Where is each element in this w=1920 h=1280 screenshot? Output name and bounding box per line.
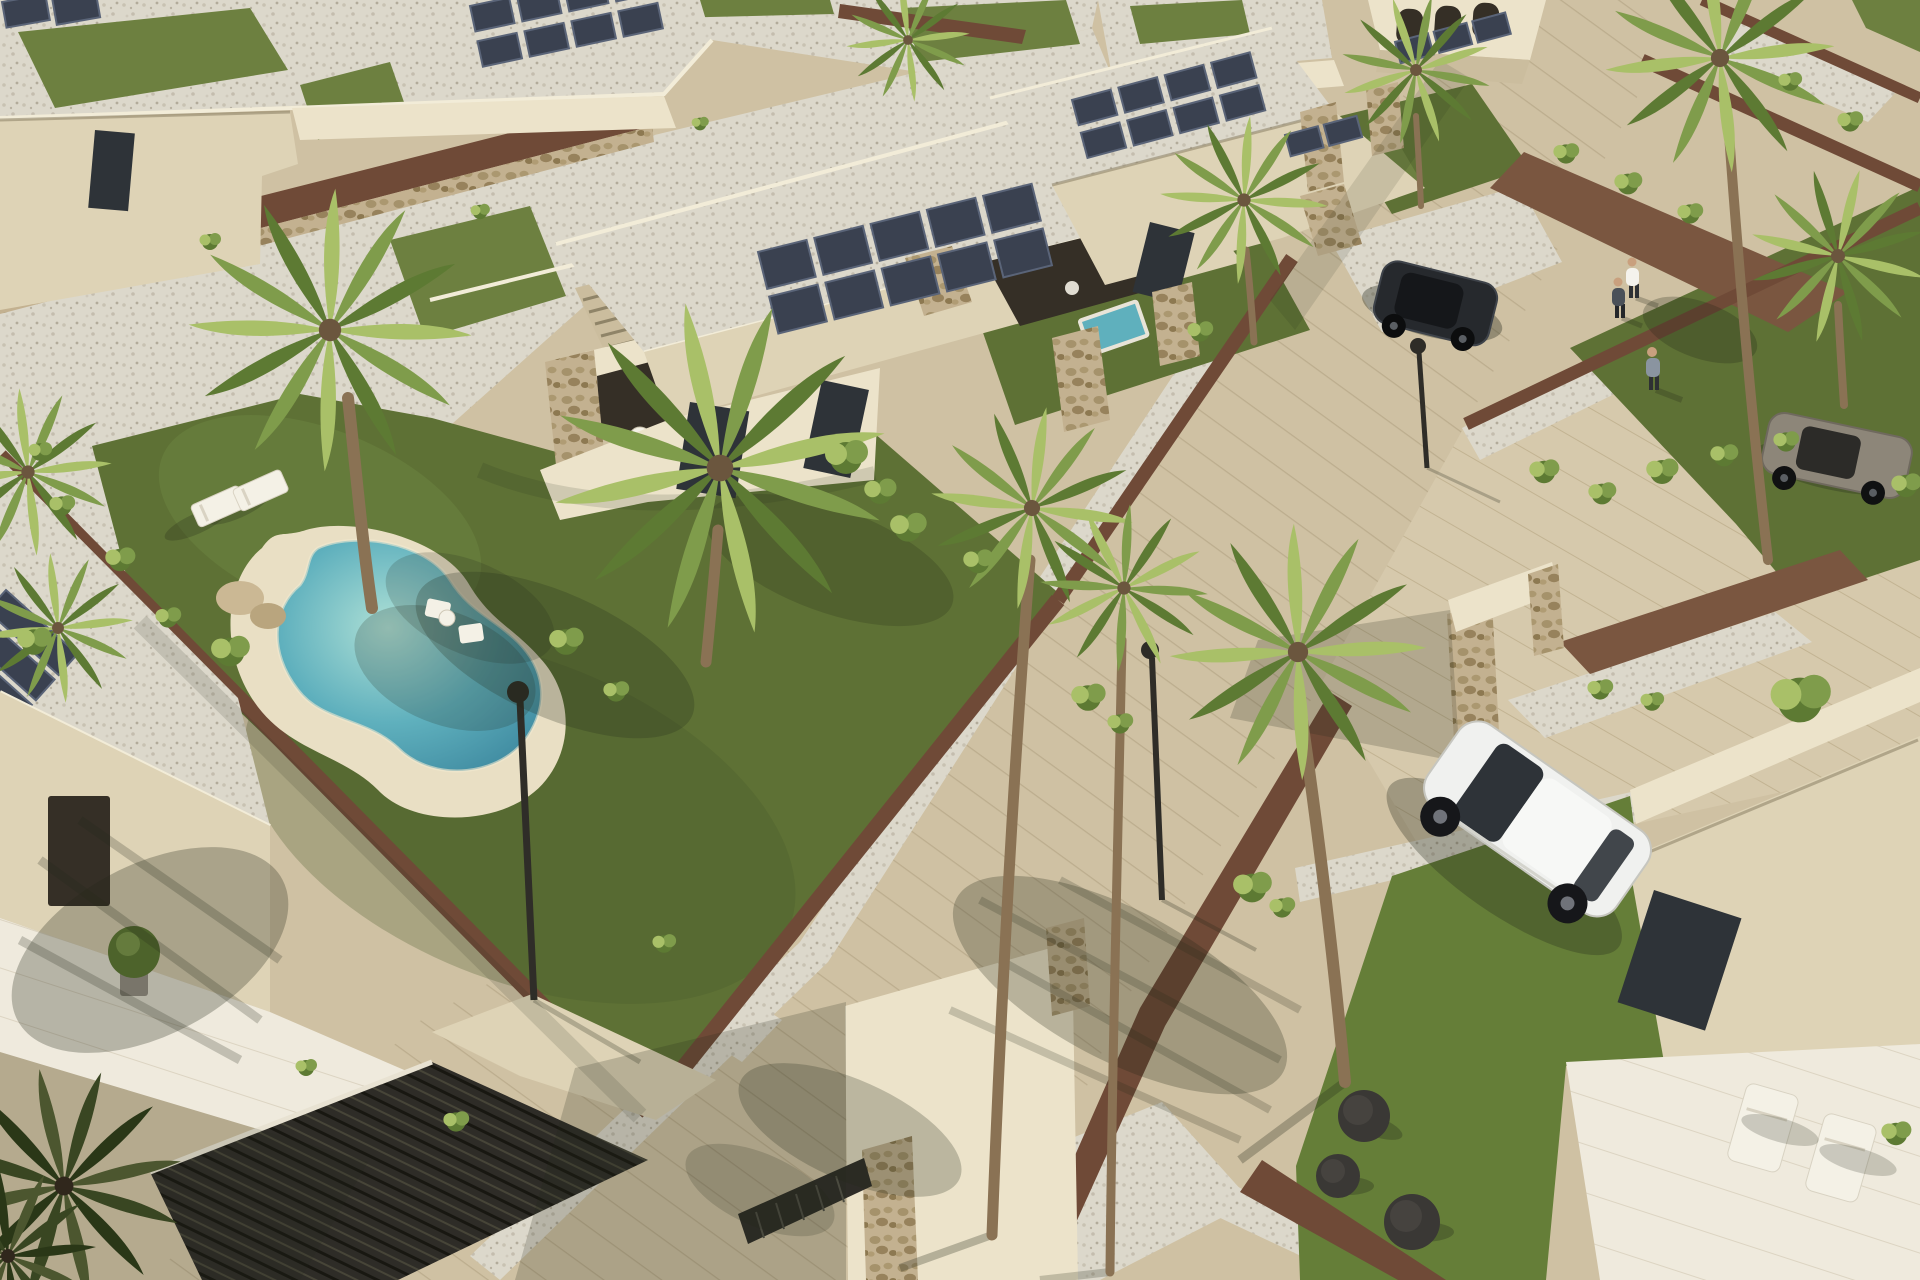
villa-development-render: 3D architectural render of a villa devel… [0,0,1920,1280]
render-viewport: 3D architectural render of a villa devel… [0,0,1920,1280]
window-top-left-villa [88,130,135,211]
